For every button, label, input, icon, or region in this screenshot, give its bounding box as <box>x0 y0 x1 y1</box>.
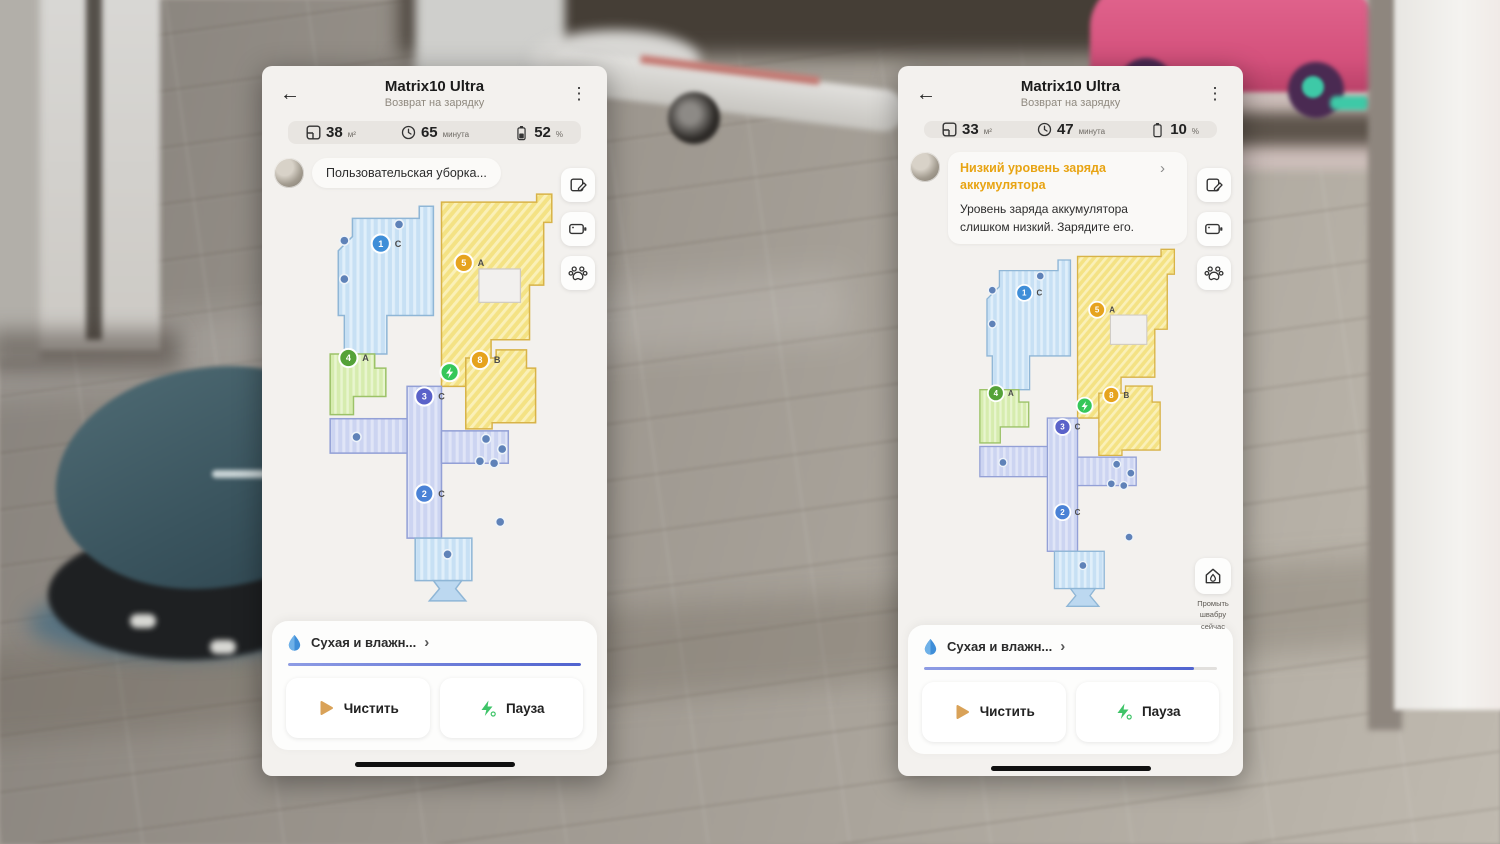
area-value: 33 <box>962 121 979 138</box>
map-area[interactable]: 1 C 5 A 4 A 3 <box>262 188 607 613</box>
corridor-left[interactable] <box>979 446 1050 476</box>
battery-stat: 10 % <box>1150 121 1199 138</box>
dock-marker[interactable] <box>1076 397 1092 413</box>
mode-progress-track <box>924 667 1217 670</box>
svg-text:C: C <box>1074 508 1080 517</box>
warning-title: Низкий уровень заряда аккумулятора <box>960 160 1150 194</box>
app-screenshot-left: ← Matrix10 Ultra Возврат на зарядку ⋮ 38… <box>262 66 607 776</box>
pet-mode-button[interactable] <box>1197 256 1231 290</box>
svg-text:A: A <box>1008 389 1014 398</box>
battery-horizontal-icon <box>568 221 588 237</box>
lightning-icon <box>1114 702 1133 721</box>
header: ← Matrix10 Ultra Возврат на зарядку ⋮ <box>898 66 1243 111</box>
room-bottom-entry[interactable] <box>1054 551 1104 588</box>
robot-status-subtitle: Возврат на зарядку <box>946 97 1195 109</box>
water-drop-icon <box>286 633 303 652</box>
chevron-right-icon: › <box>1160 160 1165 194</box>
play-icon <box>317 699 335 717</box>
battery-value: 52 <box>534 124 551 141</box>
svg-text:A: A <box>477 258 484 268</box>
warning-body: Уровень заряда аккумулятора слишком низк… <box>960 200 1175 236</box>
cleaning-mode-row[interactable]: Сухая и влажн... › <box>922 637 1219 656</box>
page-title: Matrix10 Ultra <box>946 78 1195 95</box>
cleaning-stats-bar: 38 м² 65 минута 52 % <box>288 121 581 144</box>
room-bottom-entry[interactable] <box>415 538 472 581</box>
robot-vacuum-sensor-2 <box>210 640 236 654</box>
time-unit: минута <box>1079 127 1105 136</box>
room-green-kitchen[interactable] <box>979 389 1028 442</box>
avatar[interactable] <box>910 152 940 182</box>
svg-text:4: 4 <box>993 389 998 398</box>
lightning-icon <box>478 699 497 718</box>
paw-icon <box>1204 264 1224 283</box>
area-value: 38 <box>326 124 343 141</box>
map-tool-buttons <box>561 168 595 290</box>
battery-horizontal-icon <box>1204 221 1224 237</box>
pause-button[interactable]: Пауза <box>440 678 584 738</box>
area-unit: м² <box>984 127 992 136</box>
battery-mode-button[interactable] <box>1197 212 1231 246</box>
area-icon <box>306 125 321 140</box>
header: ← Matrix10 Ultra Возврат на зарядку ⋮ <box>262 66 607 111</box>
map-tool-buttons <box>1197 168 1231 290</box>
battery-stat: 52 % <box>514 124 563 141</box>
area-unit: м² <box>348 130 356 139</box>
svg-text:C: C <box>1036 288 1042 297</box>
map-island-cutout <box>478 269 519 302</box>
menu-button[interactable]: ⋮ <box>559 85 599 102</box>
robot-vacuum-sensor <box>130 614 156 628</box>
svg-text:C: C <box>394 239 401 249</box>
mode-progress-track <box>288 663 581 666</box>
svg-text:8: 8 <box>477 355 482 365</box>
clean-button[interactable]: Чистить <box>922 682 1066 742</box>
control-card: Сухая и влажн... › Чистить <box>272 621 597 750</box>
svg-text:B: B <box>1123 391 1129 400</box>
water-drop-icon <box>922 637 939 656</box>
play-icon <box>953 703 971 721</box>
cabinet-gap <box>86 0 102 340</box>
corridor-vertical[interactable] <box>407 386 441 538</box>
clean-button-label: Чистить <box>344 701 399 716</box>
back-button[interactable]: ← <box>906 84 946 104</box>
svg-text:C: C <box>438 392 445 402</box>
status-row: Низкий уровень заряда аккумулятора › Уро… <box>910 152 1172 244</box>
dock-funnel <box>429 581 465 601</box>
low-battery-warning[interactable]: Низкий уровень заряда аккумулятора › Уро… <box>948 152 1187 244</box>
mode-progress-fill <box>288 663 581 666</box>
svg-text:1: 1 <box>378 239 383 249</box>
room-green-kitchen[interactable] <box>330 354 386 415</box>
cabinet-shadow <box>0 330 180 370</box>
map-area[interactable]: 1 C 5 A 4 A 3 <box>898 244 1243 617</box>
app-screenshot-right: ← Matrix10 Ultra Возврат на зарядку ⋮ 33… <box>898 66 1243 776</box>
home-indicator <box>355 762 515 767</box>
svg-text:A: A <box>1109 305 1115 314</box>
clean-button-label: Чистить <box>980 704 1035 719</box>
back-button[interactable]: ← <box>270 84 310 104</box>
battery-value: 10 <box>1170 121 1187 138</box>
svg-text:3: 3 <box>1060 422 1065 431</box>
mode-progress-fill <box>924 667 1194 670</box>
mode-label: Сухая и влажн... <box>947 639 1052 654</box>
chair-caster-wheel <box>668 92 720 144</box>
screenshot-stage: ← Matrix10 Ultra Возврат на зарядку ⋮ 38… <box>0 0 1500 844</box>
edit-map-icon <box>1205 176 1224 195</box>
white-door <box>1394 0 1500 710</box>
time-unit: минута <box>443 130 469 139</box>
time-value: 47 <box>1057 121 1074 138</box>
svg-text:5: 5 <box>1094 305 1099 314</box>
wash-mop-label: Промыть швабру сейчас <box>1193 598 1233 632</box>
mode-label: Сухая и влажн... <box>311 635 416 650</box>
paw-icon <box>568 264 588 283</box>
clock-icon <box>401 125 416 140</box>
pause-button[interactable]: Пауза <box>1076 682 1220 742</box>
battery-unit: % <box>1192 127 1199 136</box>
robot-status-subtitle: Возврат на зарядку <box>310 97 559 109</box>
area-icon <box>942 122 957 137</box>
edit-map-button[interactable] <box>1197 168 1231 202</box>
house-drop-icon <box>1203 566 1223 586</box>
svg-text:8: 8 <box>1109 391 1114 400</box>
wash-mop-button[interactable]: Промыть швабру сейчас <box>1193 558 1233 632</box>
svg-text:2: 2 <box>421 489 426 499</box>
edit-map-icon <box>569 176 588 195</box>
cleaning-mode-pill[interactable]: Пользовательская уборка... <box>312 158 501 188</box>
area-stat: 33 м² <box>942 121 992 138</box>
svg-text:5: 5 <box>461 258 466 268</box>
svg-text:A: A <box>362 353 369 363</box>
cleaning-stats-bar: 33 м² 47 минута 10 % <box>924 121 1217 138</box>
avatar[interactable] <box>274 158 304 188</box>
action-buttons: Чистить Пауза <box>922 682 1219 742</box>
corridor-vertical[interactable] <box>1047 418 1077 551</box>
cabinet-side-panel <box>0 0 40 360</box>
time-stat: 65 минута <box>401 124 469 141</box>
room-blue-living[interactable] <box>986 260 1069 390</box>
toy-car-hubcap <box>1302 76 1324 98</box>
map-island-cutout <box>1110 315 1146 344</box>
svg-text:3: 3 <box>421 392 426 402</box>
area-stat: 38 м² <box>306 124 356 141</box>
battery-mode-button[interactable] <box>561 212 595 246</box>
page-title: Matrix10 Ultra <box>310 78 559 95</box>
pet-mode-button[interactable] <box>561 256 595 290</box>
menu-button[interactable]: ⋮ <box>1195 85 1235 102</box>
svg-text:B: B <box>493 355 500 365</box>
robot-vacuum-highlight <box>212 470 268 478</box>
clean-button[interactable]: Чистить <box>286 678 430 738</box>
control-card: Сухая и влажн... › Чистить <box>908 625 1233 754</box>
cleaning-mode-row[interactable]: Сухая и влажн... › <box>286 633 583 652</box>
battery-icon <box>514 125 529 141</box>
header-titles: Matrix10 Ultra Возврат на зарядку <box>946 78 1195 109</box>
svg-text:C: C <box>1074 422 1080 431</box>
svg-text:2: 2 <box>1060 508 1065 517</box>
header-titles: Matrix10 Ultra Возврат на зарядку <box>310 78 559 109</box>
chevron-right-icon: › <box>424 634 429 651</box>
status-row: Пользовательская уборка... <box>274 158 536 188</box>
pause-button-label: Пауза <box>506 701 545 716</box>
dock-marker[interactable] <box>440 363 458 381</box>
floor-map[interactable]: 1 C 5 A 4 A 3 <box>328 188 556 613</box>
svg-text:1: 1 <box>1022 288 1027 297</box>
time-value: 65 <box>421 124 438 141</box>
time-stat: 47 минута <box>1037 121 1105 138</box>
home-indicator <box>991 766 1151 771</box>
chevron-right-icon: › <box>1060 638 1065 655</box>
corridor-left[interactable] <box>330 419 411 453</box>
svg-text:C: C <box>438 489 445 499</box>
dock-funnel <box>1066 588 1098 606</box>
edit-map-button[interactable] <box>561 168 595 202</box>
floor-map[interactable]: 1 C 5 A 4 A 3 <box>978 244 1178 617</box>
clock-icon <box>1037 122 1052 137</box>
pause-button-label: Пауза <box>1142 704 1181 719</box>
battery-unit: % <box>556 130 563 139</box>
battery-low-icon <box>1150 122 1165 138</box>
action-buttons: Чистить Пауза <box>286 678 583 738</box>
toy-car-trim-2 <box>1330 96 1370 110</box>
room-blue-living[interactable] <box>338 206 433 354</box>
